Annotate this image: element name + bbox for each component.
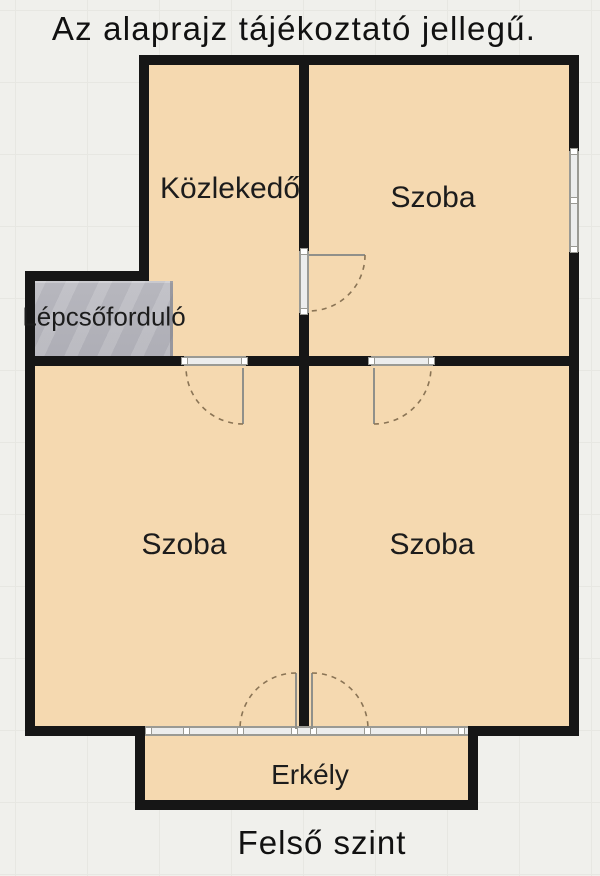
sill-cap xyxy=(364,727,371,735)
page-title: Az alaprajz tájékoztató jellegű. xyxy=(0,10,588,48)
floor-level-caption: Felső szint xyxy=(238,824,407,862)
wall-center-lower xyxy=(299,313,309,731)
floor-plan-canvas: Az alaprajz tájékoztató jellegű. xyxy=(0,0,600,876)
wall-top xyxy=(139,55,579,65)
wall-balcony-left xyxy=(135,726,145,810)
room-label-stair-landing: Lépcsőforduló xyxy=(22,302,185,333)
door-jamb-bottom-right xyxy=(371,356,433,366)
room-label-bottom-left: Szoba xyxy=(141,528,226,562)
sill-cap xyxy=(291,727,298,735)
sill-cap xyxy=(183,727,190,735)
door-cap xyxy=(300,308,308,315)
wall-right-seg2 xyxy=(569,252,579,736)
wall-bottom-left xyxy=(25,726,145,736)
door-jamb-bottom-left xyxy=(184,356,246,366)
wall-center-upper xyxy=(299,55,309,251)
wall-upper-left xyxy=(139,55,149,281)
upper-rooms-fill xyxy=(144,60,574,361)
sill-cap xyxy=(310,727,317,735)
wall-left xyxy=(25,271,35,736)
door-cap xyxy=(368,357,375,365)
sill-cap xyxy=(458,727,465,735)
wall-balcony-right xyxy=(468,726,478,810)
door-cap xyxy=(241,357,248,365)
window-cap xyxy=(570,148,578,155)
room-label-hallway: Közlekedő xyxy=(160,172,300,206)
wall-right-seg1 xyxy=(569,55,579,151)
sill-cap xyxy=(420,727,427,735)
door-jamb-hallway-room xyxy=(299,251,309,313)
door-cap xyxy=(300,248,308,255)
wall-mid-seg1 xyxy=(25,356,184,366)
wall-bottom-right xyxy=(468,726,579,736)
room-label-top-right: Szoba xyxy=(390,181,475,215)
wall-landing-top xyxy=(25,271,149,281)
wall-balcony-bottom xyxy=(135,800,478,810)
door-cap xyxy=(428,357,435,365)
window-cap xyxy=(570,246,578,253)
wall-mid-seg3 xyxy=(433,356,579,366)
sill-cap xyxy=(237,727,244,735)
sill-cap xyxy=(145,727,152,735)
room-label-bottom-right: Szoba xyxy=(389,528,474,562)
door-cap xyxy=(181,357,188,365)
room-label-balcony: Erkély xyxy=(271,759,349,791)
window-cap xyxy=(570,197,578,204)
